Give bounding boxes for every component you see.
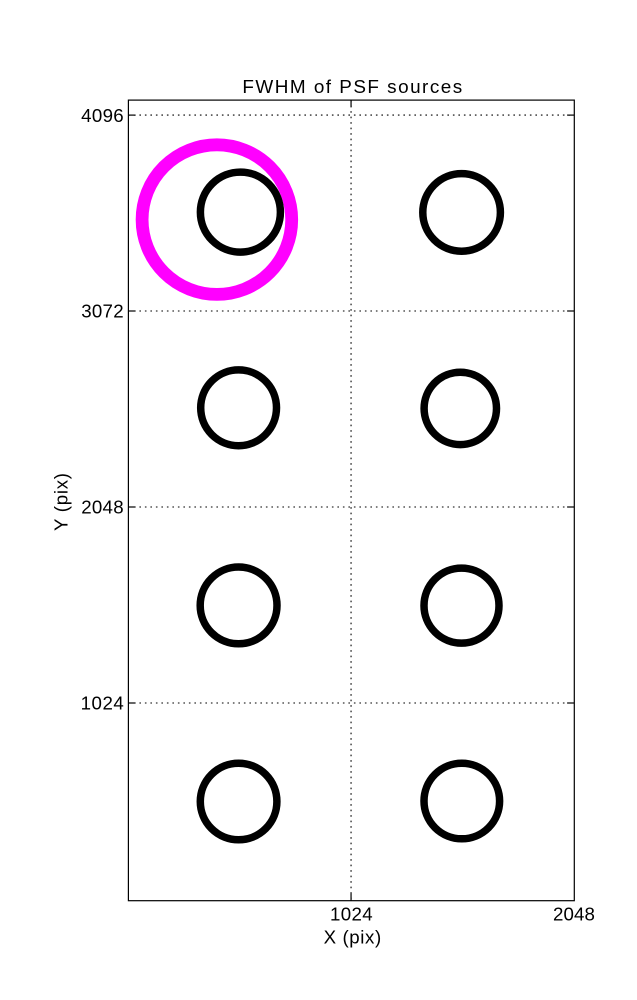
- svg-text:1024: 1024: [330, 903, 373, 924]
- svg-text:4096: 4096: [81, 105, 124, 126]
- svg-text:2048: 2048: [81, 497, 123, 518]
- svg-text:3072: 3072: [81, 301, 123, 322]
- svg-text:Y (pix): Y (pix): [51, 473, 72, 531]
- svg-text:2048: 2048: [553, 903, 595, 924]
- svg-text:1024: 1024: [81, 693, 124, 714]
- svg-text:X (pix): X (pix): [324, 927, 382, 948]
